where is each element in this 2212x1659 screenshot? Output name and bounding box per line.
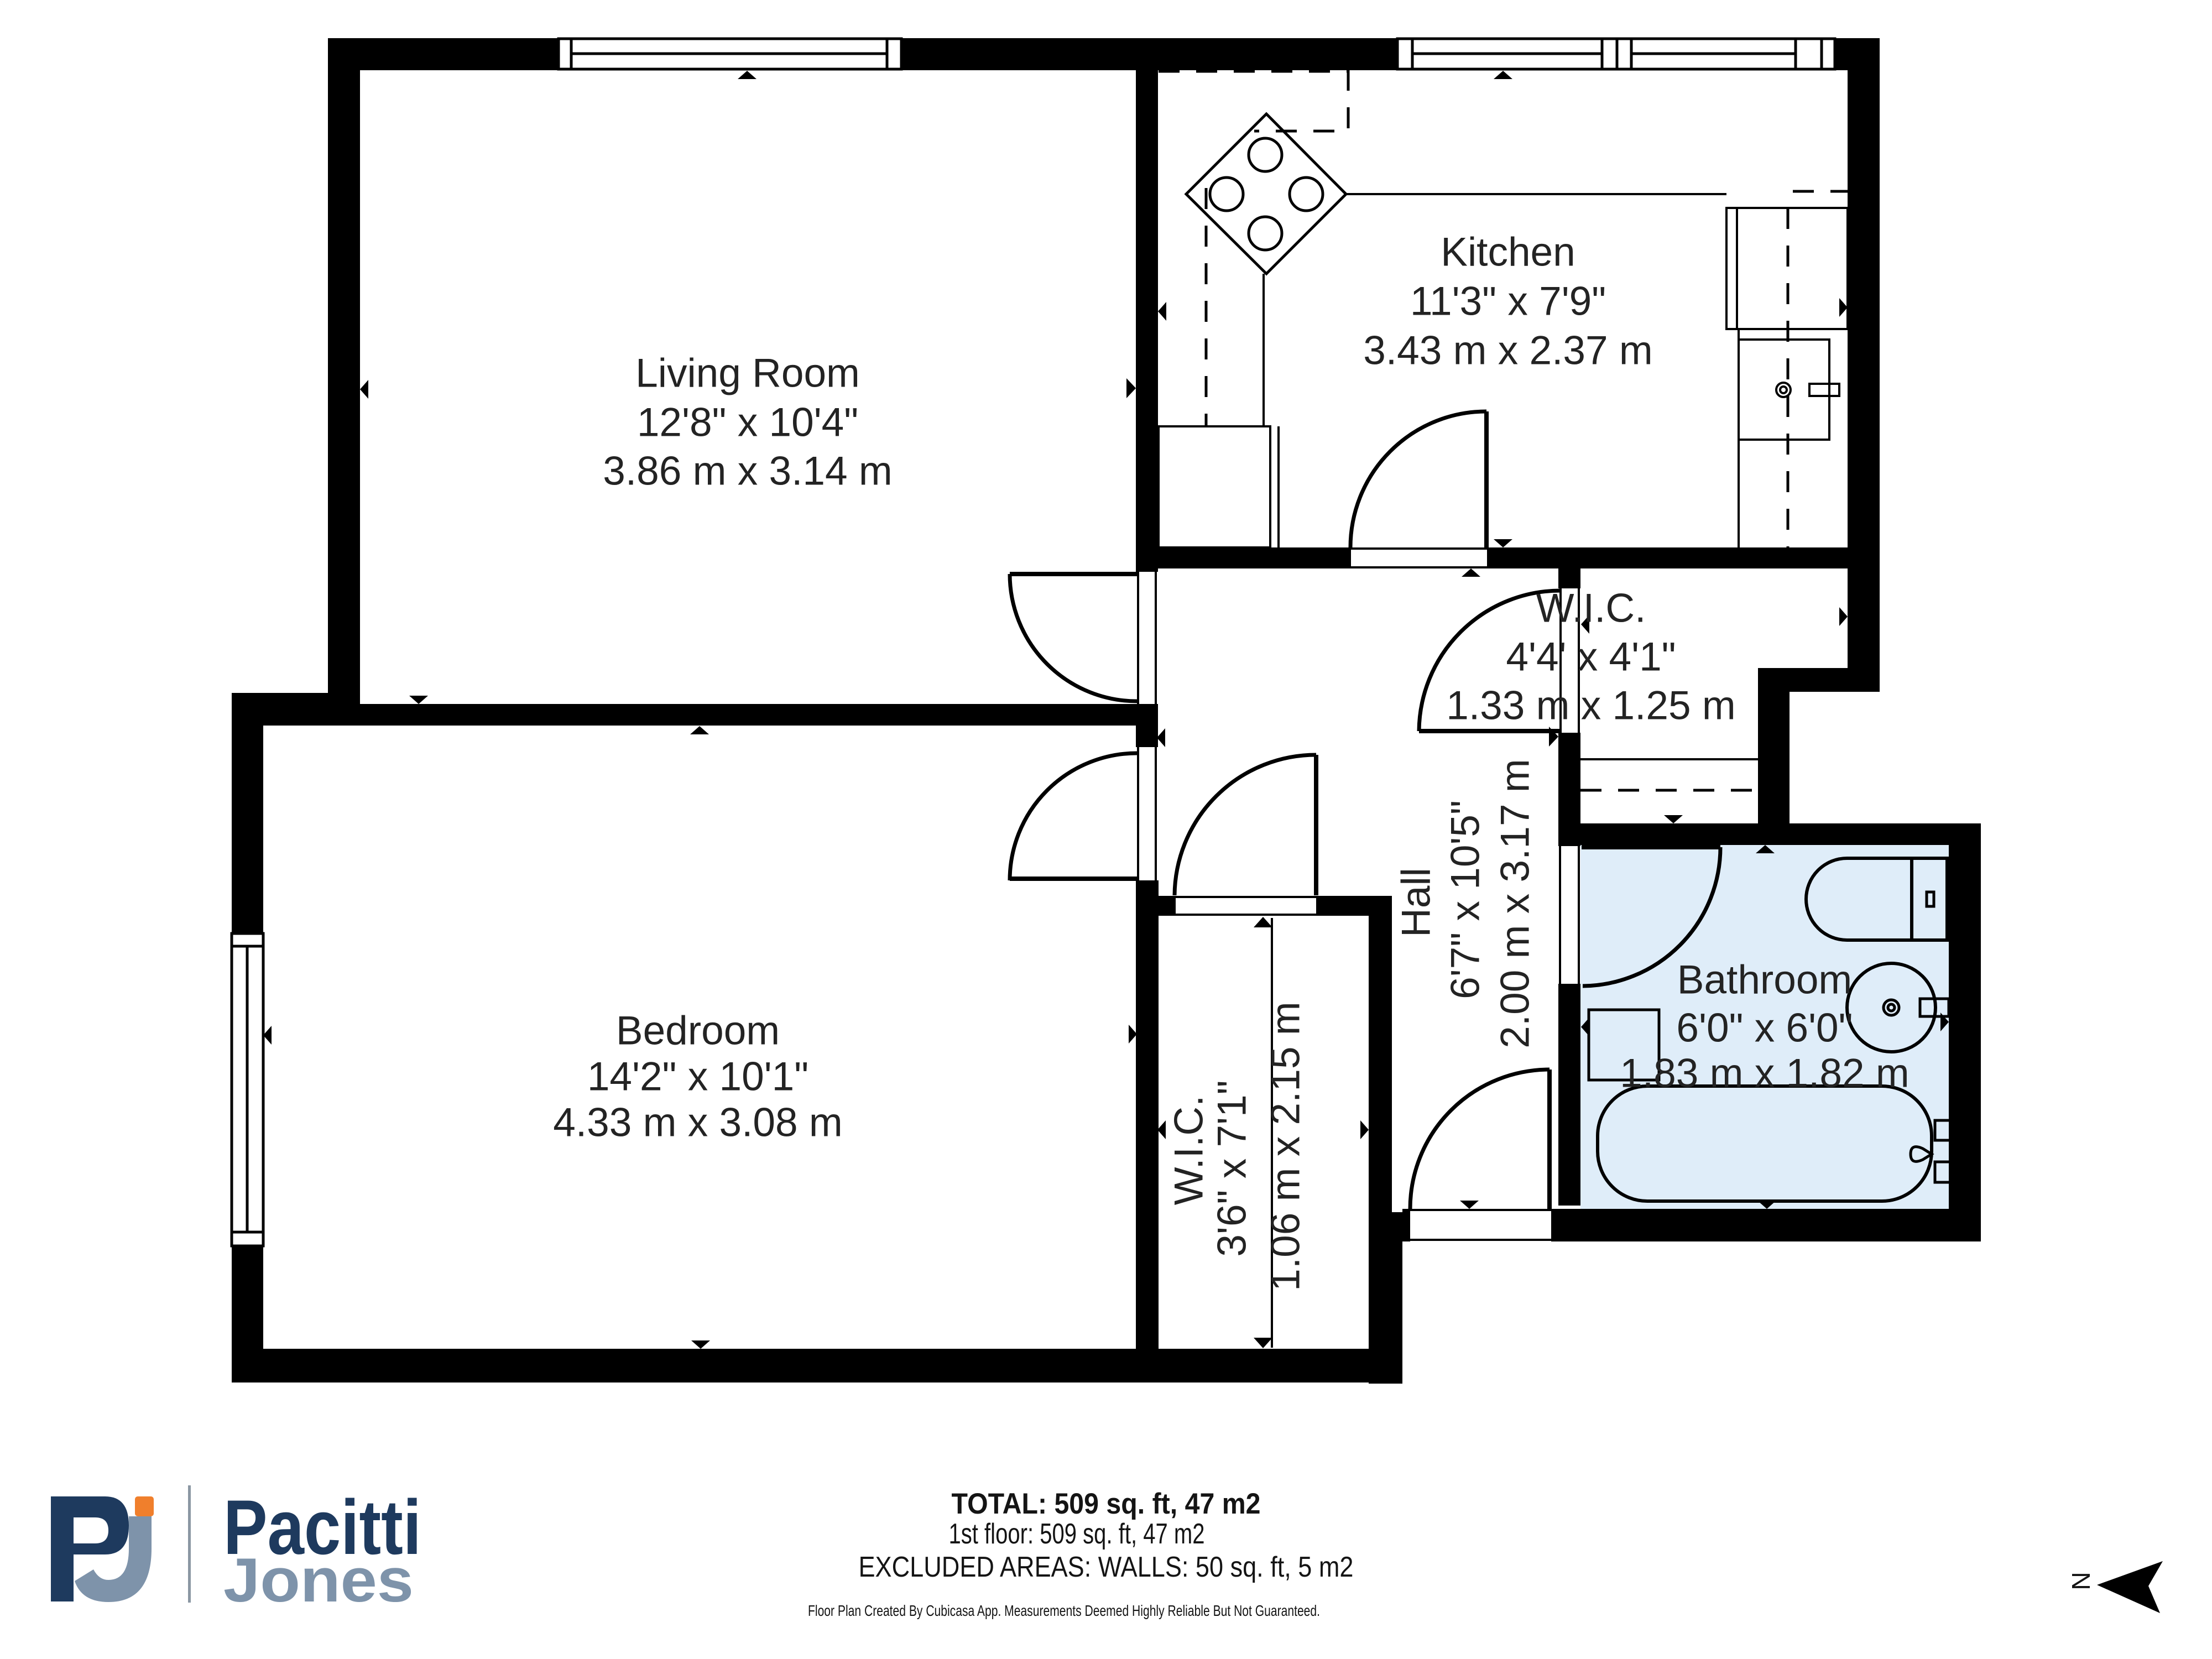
svg-text:3.86 m x 3.14 m: 3.86 m x 3.14 m: [603, 449, 892, 494]
svg-text:N: N: [2067, 1572, 2095, 1590]
svg-text:W.I.C.: W.I.C.: [1536, 586, 1646, 631]
svg-text:1st floor: 509 sq. ft, 47 m2: 1st floor: 509 sq. ft, 47 m2: [949, 1518, 1205, 1550]
svg-text:11'3" x 7'9": 11'3" x 7'9": [1410, 279, 1606, 324]
svg-text:TOTAL: 509 sq. ft, 47 m2: TOTAL: 509 sq. ft, 47 m2: [952, 1488, 1261, 1520]
svg-text:14'2" x 10'1": 14'2" x 10'1": [587, 1055, 808, 1099]
svg-text:6'7" x 10'5": 6'7" x 10'5": [1443, 800, 1488, 999]
svg-text:Kitchen: Kitchen: [1441, 230, 1575, 275]
svg-text:2.00 m x 3.17 m: 2.00 m x 3.17 m: [1493, 759, 1538, 1048]
svg-text:Bedroom: Bedroom: [616, 1009, 780, 1053]
svg-text:6'0" x 6'0": 6'0" x 6'0": [1676, 1006, 1853, 1051]
svg-text:Living Room: Living Room: [635, 351, 860, 396]
svg-text:Bathroom: Bathroom: [1677, 958, 1853, 1003]
svg-text:1.06 m x 2.15 m: 1.06 m x 2.15 m: [1264, 1001, 1308, 1291]
svg-text:1.33 m x 1.25 m: 1.33 m x 1.25 m: [1446, 684, 1735, 728]
svg-text:1.83 m x 1.82 m: 1.83 m x 1.82 m: [1620, 1051, 1909, 1096]
svg-text:12'8" x 10'4": 12'8" x 10'4": [637, 400, 858, 445]
svg-text:Jones: Jones: [223, 1546, 414, 1615]
svg-text:4.33 m x 3.08 m: 4.33 m x 3.08 m: [553, 1100, 842, 1145]
svg-text:3.43 m x 2.37 m: 3.43 m x 2.37 m: [1363, 328, 1652, 373]
svg-text:Floor Plan Created By Cubicasa: Floor Plan Created By Cubicasa App. Meas…: [808, 1602, 1320, 1619]
svg-text:4'4' x 4'1": 4'4' x 4'1": [1506, 635, 1676, 680]
svg-text:EXCLUDED AREAS: WALLS: 50 sq.: EXCLUDED AREAS: WALLS: 50 sq. ft, 5 m2: [859, 1551, 1354, 1583]
svg-text:W.I.C.: W.I.C.: [1167, 1095, 1212, 1206]
svg-text:3'6" x 7'1": 3'6" x 7'1": [1210, 1080, 1255, 1256]
svg-text:Hall: Hall: [1394, 868, 1439, 937]
